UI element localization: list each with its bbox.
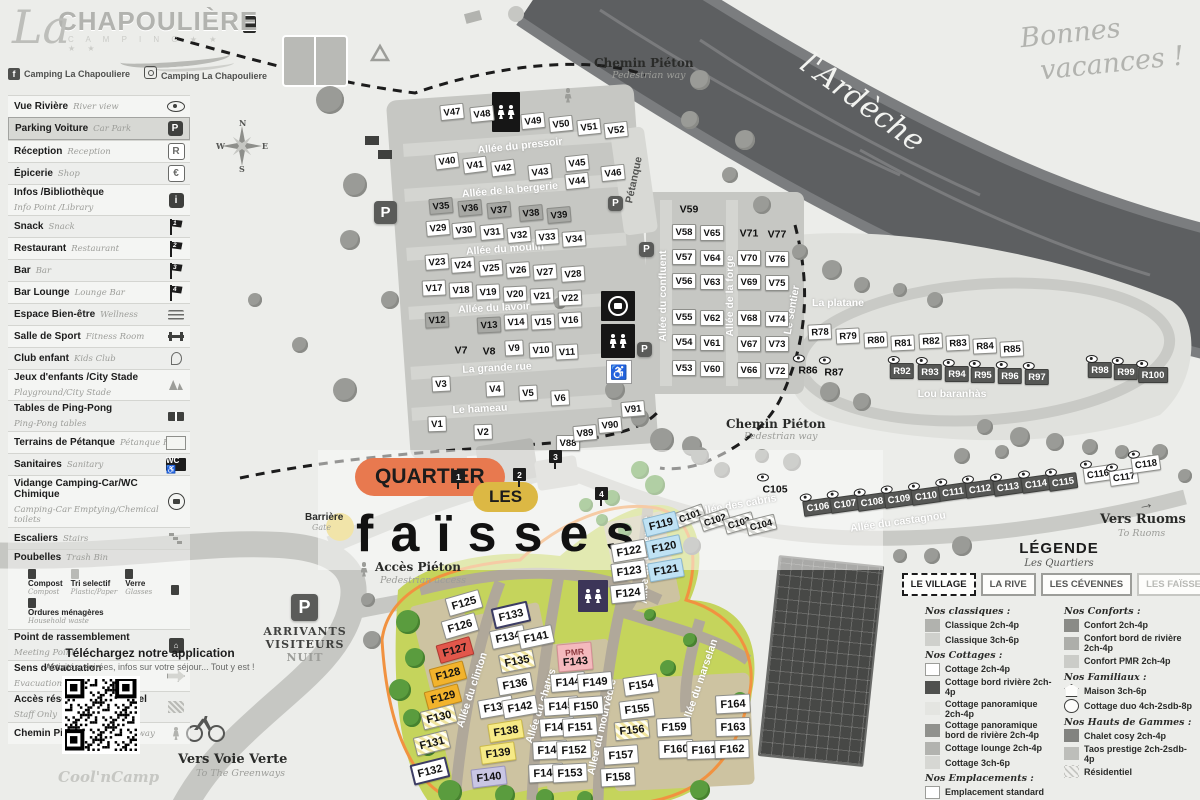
acces-pieton-fr: Accès Piéton	[375, 560, 461, 574]
pitch-F143: PMRF143	[556, 642, 593, 673]
tree-icon	[381, 291, 399, 309]
flag3-icon: 3	[166, 263, 186, 279]
pitch-V10: V10	[529, 341, 554, 358]
pitch-F151: F151	[562, 716, 598, 737]
tree-icon	[363, 631, 381, 649]
legend-item: Cottage bord rivière 2ch-4p	[925, 677, 1054, 697]
pitch-V24: V24	[451, 256, 476, 274]
parking-icon: P	[374, 201, 397, 224]
legend-swatch-icon	[1064, 684, 1079, 697]
legend-item: Cottage duo 4ch-2sdb-8p	[1064, 699, 1193, 713]
pitch-V41: V41	[462, 156, 488, 175]
tree-icon	[340, 230, 360, 250]
trash-icon	[166, 582, 186, 598]
pitch-V6: V6	[550, 390, 569, 407]
pitch-V74: V74	[765, 311, 789, 327]
tree-icon	[292, 337, 308, 353]
wc-icon	[492, 92, 520, 132]
legend-swatch-icon	[1064, 655, 1079, 668]
pitch-F156: F156	[614, 719, 651, 742]
facility-name-fr: Restaurant	[14, 243, 66, 254]
pitch-V20: V20	[503, 285, 528, 302]
pitch-R96: R96	[998, 368, 1022, 384]
pitch-V28: V28	[561, 265, 586, 283]
acces-pieton-en: Pedestrian access	[380, 575, 466, 586]
app-promo: Téléchargez notre application Activités,…	[0, 646, 300, 672]
pitch-V58: V58	[672, 224, 696, 240]
wc-icon-faisses	[578, 580, 608, 612]
sidebar-item-reception: RéceptionReceptionR	[8, 140, 190, 162]
legend-swatch-icon	[925, 724, 940, 737]
facility-name-fr: Snack	[14, 221, 43, 232]
sidebar-item-wellness: Espace Bien-êtreWellness	[8, 303, 190, 325]
pitch-V26: V26	[506, 261, 531, 279]
pitch-R84: R84	[972, 337, 997, 354]
wellness-icon	[166, 307, 186, 323]
facility-name-fr: Poubelles	[14, 552, 61, 563]
facility-name-fr: Réception	[14, 146, 62, 157]
facility-flag-4: 4	[595, 487, 608, 500]
pitch-V33: V33	[535, 228, 560, 246]
tree-icon	[495, 785, 515, 800]
pitch-V47: V47	[439, 103, 464, 121]
legend-section-title: Nos Conforts :	[1064, 606, 1193, 617]
pitch-V53: V53	[672, 360, 696, 376]
quarter-chip-les-cévennes[interactable]: LES CÉVENNES	[1041, 573, 1132, 596]
pitch-F159: F159	[656, 717, 692, 738]
sidebar-item-sanitary: SanitairesSanitaryWC♿	[8, 453, 190, 475]
river-view-eye-icon	[943, 359, 955, 367]
playground-icon	[166, 377, 186, 393]
facility-name-fr: Club enfant	[14, 353, 69, 364]
legend-item: Emplacement standard	[925, 786, 1054, 799]
pitch-V40: V40	[434, 152, 460, 171]
pitch-V76: V76	[765, 251, 789, 267]
tree-icon	[977, 419, 993, 435]
pitch-V62: V62	[700, 310, 724, 326]
river-view-eye-icon	[989, 473, 1002, 483]
tree-icon	[853, 393, 871, 411]
legend-swatch-icon	[925, 619, 940, 632]
legend-item: Confort PMR 2ch-4p	[1064, 655, 1193, 668]
pitch-V11: V11	[555, 343, 579, 360]
facility-name-en: Playground/City Stade	[14, 388, 111, 398]
legend-item: Taos prestige 2ch-2sdb-4p	[1064, 744, 1193, 764]
pitch-V29: V29	[425, 219, 450, 237]
facility-name-en: Stairs	[63, 534, 88, 544]
social-links: fCamping La Chapouliere Camping La Chapo…	[8, 66, 267, 81]
pitch-V5: V5	[518, 385, 537, 402]
greenway-label-en: To The Greenways	[196, 768, 285, 779]
pitch-R83: R83	[945, 334, 970, 351]
facility-name-en: Lounge Bar	[75, 288, 125, 298]
pedestrian-icon	[166, 726, 186, 742]
facility-name-fr: Infos /Bibliothèque	[14, 187, 104, 198]
facility-name-en: Camping-Car Emptying/Chemical toilets	[14, 505, 186, 525]
pitch-V25: V25	[479, 259, 504, 277]
river-view-eye-icon	[916, 357, 928, 365]
sidebar-item-playground: Jeux d'enfants /City StadePlayground/Cit…	[8, 369, 190, 400]
river-view-eye-icon	[1044, 468, 1057, 478]
tree-icon	[995, 445, 1009, 459]
sidebar-item-info: Infos /BibliothèqueInfo Point /Libraryi	[8, 184, 190, 215]
tree-icon	[361, 593, 375, 607]
pitch-V37: V37	[486, 201, 511, 219]
pitch-V46: V46	[600, 164, 625, 182]
instagram-link: Camping La Chapouliere	[144, 66, 267, 81]
facility-name-en: Wellness	[100, 310, 138, 320]
pitch-V30: V30	[451, 221, 476, 239]
legend-item: Cottage lounge 2ch-4p	[925, 742, 1054, 755]
pitch-V38: V38	[518, 204, 543, 222]
facility-name-fr: Espace Bien-être	[14, 309, 95, 320]
app-promo-title: Téléchargez notre application	[0, 646, 300, 660]
river-view-eye-icon	[1105, 463, 1118, 473]
legend-swatch-icon	[925, 663, 940, 676]
sidebar-item-flag3: BarBar3	[8, 259, 190, 281]
tree-icon	[333, 378, 357, 402]
bicycle-icon	[186, 716, 226, 742]
quarter-chip-le-village[interactable]: LE VILLAGE	[902, 573, 976, 596]
pitch-R79: R79	[835, 327, 860, 344]
legend-section-title: Nos Familiaux :	[1064, 672, 1193, 683]
facebook-icon: f	[8, 68, 20, 80]
pitch-V59: V59	[677, 202, 701, 217]
facility-name-en: Snack	[48, 222, 74, 232]
legend-section-title: Nos Emplacements :	[925, 773, 1054, 784]
facility-name-en: Car Park	[93, 124, 131, 134]
river-view-eye-icon	[935, 478, 948, 488]
legend-swatch-icon	[925, 742, 940, 755]
legend: LÉGENDE Les Quartiers LE VILLAGELA RIVEL…	[925, 540, 1193, 800]
tree-icon	[735, 130, 755, 150]
sidebar-item-parking: Parking VoitureCar ParkP	[8, 117, 190, 140]
legend-item: Cottage 2ch-4p	[925, 663, 1054, 676]
pitch-V55: V55	[672, 309, 696, 325]
sidebar-item-vidange: Vidange Camping-Car/WC ChimiqueCamping-C…	[8, 475, 190, 527]
tree-icon	[644, 609, 656, 621]
facility-flag-2: 2	[513, 468, 526, 481]
pitch-V56: V56	[672, 273, 696, 289]
pitch-V35: V35	[428, 197, 453, 215]
tree-icon	[405, 648, 425, 668]
banner-faisses: faïsses	[356, 504, 651, 564]
tree-icon	[438, 780, 462, 800]
legend-item: Confort bord de rivière 2ch-4p	[1064, 633, 1193, 653]
facility-name-fr: Terrains de Pétanque	[14, 437, 115, 448]
quarter-chip-la-rive[interactable]: LA RIVE	[981, 573, 1036, 596]
pitch-V21: V21	[530, 287, 555, 304]
legend-item: Chalet cosy 2ch-4p	[1064, 729, 1193, 742]
facility-name-fr: Bar	[14, 265, 31, 276]
tree-icon	[792, 244, 808, 260]
pitch-V7: V7	[452, 343, 470, 358]
instagram-icon	[144, 66, 157, 79]
pitch-V8: V8	[480, 344, 498, 359]
kids-icon	[166, 351, 186, 367]
tree-icon	[820, 382, 840, 402]
pitch-V18: V18	[449, 281, 474, 298]
facility-name-fr: Bar Lounge	[14, 287, 70, 298]
pitch-V42: V42	[490, 159, 516, 178]
street-label: Lou baranhàs	[918, 388, 987, 400]
river-view-eye-icon	[799, 493, 812, 503]
legend-item: Maison 3ch-6p	[1064, 684, 1193, 697]
pitch-R92: R92	[890, 363, 914, 379]
facility-name-fr: Sanitaires	[14, 459, 62, 470]
pitch-F162: F162	[714, 739, 750, 759]
compass-rose: N E S W	[218, 122, 266, 170]
pitch-V39: V39	[546, 206, 571, 224]
tree-icon	[683, 633, 697, 647]
tree-icon	[753, 196, 771, 214]
sidebar-item-stairs: EscaliersStairs	[8, 527, 190, 549]
river-view-eye-icon	[1086, 355, 1098, 363]
pitch-V17: V17	[422, 279, 447, 296]
tree-icon	[690, 780, 710, 800]
river-view-eye-icon	[1112, 357, 1124, 365]
barriere-label: Barrière	[305, 512, 343, 523]
sidebar-item-fitness: Salle de SportFitness Room	[8, 325, 190, 347]
pitch-R100: R100	[1138, 367, 1168, 383]
river-view-eye-icon	[961, 475, 974, 485]
pitch-R94: R94	[945, 366, 969, 382]
pitch-R85: R85	[999, 340, 1024, 357]
tree-icon	[927, 292, 943, 308]
shop-icon: €	[166, 166, 186, 182]
sidebar-item-trash: PoubellesTrash BinCompostCompostTri sele…	[8, 549, 190, 629]
pitch-V36: V36	[457, 199, 482, 217]
pitch-V31: V31	[479, 223, 504, 241]
chemin-pieton-right-en: Pedestrian way	[744, 431, 818, 442]
app-promo-subtitle: Activités, soirées, infos sur votre séjo…	[0, 662, 300, 672]
pitch-F150: F150	[568, 695, 604, 716]
river-view-eye-icon	[757, 474, 769, 482]
barriere-label-en: Gate	[312, 523, 331, 532]
river-view-eye-icon	[826, 490, 839, 500]
tree-icon	[893, 549, 907, 563]
legend-swatch-icon	[1064, 729, 1079, 742]
pitch-R82: R82	[918, 332, 943, 349]
pitch-V19: V19	[476, 283, 501, 300]
facility-name-en: Ping-Pong tables	[14, 419, 86, 429]
pitch-V72: V72	[765, 363, 789, 379]
pitch-V61: V61	[700, 335, 724, 351]
pitch-V89: V89	[572, 424, 597, 442]
pitch-F163: F163	[715, 717, 751, 737]
pitch-V70: V70	[737, 250, 761, 266]
pitch-R99: R99	[1114, 364, 1138, 380]
accessible-icon: ♿	[606, 360, 632, 384]
logo: La CHAPOULIÈRE C A M P I N G ★ ★ ★ ★	[10, 6, 240, 53]
pitch-R93: R93	[918, 364, 942, 380]
legend-subtitle: Les Quartiers	[925, 558, 1193, 569]
sidebar-item-petanque: Terrains de PétanquePétanque Field	[8, 431, 190, 453]
pitch-V1: V1	[427, 416, 446, 433]
pitch-R78: R78	[807, 323, 832, 340]
trash-subtypes: CompostCompostTri selectifPlastic/PaperV…	[14, 568, 186, 627]
river-view-eye-icon	[1017, 470, 1030, 480]
parking-icon: P	[637, 342, 652, 357]
pitch-V71: V71	[737, 226, 761, 241]
pitch-C105: C105	[760, 482, 790, 497]
facility-name-en: Sanitary	[67, 460, 103, 470]
legend-swatch-icon	[1064, 637, 1079, 650]
pitch-V64: V64	[700, 250, 724, 266]
pitch-F158: F158	[600, 767, 636, 788]
reception-icon: R	[166, 144, 186, 160]
facility-name-fr: Parking Voiture	[15, 123, 88, 134]
facility-name-en: Info Point /Library	[14, 203, 93, 213]
legend-item: Classique 3ch-6p	[925, 633, 1054, 646]
river-view-eye-icon	[907, 482, 920, 492]
river-view-eye-icon	[819, 357, 831, 365]
trash-subtype: Tri selectifPlastic/Paper	[71, 569, 118, 596]
river-view-eye-icon	[793, 355, 805, 363]
ruoms-arrow-icon: →	[1136, 495, 1155, 516]
facility-name-fr: Point de rassemblement	[14, 632, 130, 643]
pitch-F164: F164	[715, 694, 751, 715]
facility-name-en: River view	[73, 102, 119, 112]
staff-icon	[166, 699, 186, 715]
quarter-selector: LE VILLAGELA RIVELES CÉVENNESLES FAÏSSES	[925, 573, 1193, 596]
tree-icon	[403, 709, 421, 727]
pitch-V63: V63	[700, 274, 724, 290]
legend-item: Cottage panoramique bord de rivière 2ch-…	[925, 720, 1054, 740]
legend-swatch-icon	[925, 756, 940, 769]
pitch-V49: V49	[520, 112, 545, 130]
pitch-V14: V14	[504, 313, 529, 330]
legend-item: Confort 2ch-4p	[1064, 619, 1193, 632]
pitch-R87: R87	[822, 365, 846, 380]
tree-icon	[1082, 439, 1098, 455]
facility-name-fr: Tables de Ping-Pong	[14, 403, 112, 414]
pitch-V15: V15	[531, 313, 556, 330]
pitch-V16: V16	[558, 311, 583, 328]
pitch-V27: V27	[533, 263, 558, 281]
pitch-V91: V91	[620, 400, 645, 418]
tree-icon	[343, 173, 367, 197]
facility-name-fr: Vidange Camping-Car/WC Chimique	[14, 478, 186, 500]
chemin-pieton-top-fr: Chemin Piéton	[594, 56, 694, 70]
legend-swatch-icon	[925, 681, 940, 694]
river-view-eye-icon	[996, 361, 1008, 369]
legend-swatch-icon	[1064, 699, 1079, 713]
camper-service-icon	[601, 291, 635, 321]
river-view-eye-icon	[888, 356, 900, 364]
parking-icon: P	[639, 242, 654, 257]
coolncamp-logo: Cool'nCamp	[58, 768, 148, 786]
river-view-eye-icon	[1023, 362, 1035, 370]
facility-name-en: Shop	[58, 169, 80, 179]
pitch-V4: V4	[485, 381, 504, 398]
river-view-eye-icon	[880, 485, 893, 495]
pitch-V57: V57	[672, 249, 696, 265]
qr-code	[62, 676, 140, 754]
legend-swatch-icon	[1064, 747, 1079, 760]
tree-icon	[1046, 433, 1064, 451]
facility-flag-1: 1	[452, 470, 465, 483]
trash-subtype: VerreGlasses	[125, 569, 152, 596]
facility-name-en: Kids Club	[74, 354, 116, 364]
pitch-V50: V50	[548, 115, 573, 133]
flag4-icon: 4	[166, 285, 186, 301]
pitch-V9: V9	[504, 340, 523, 357]
sidebar-item-shop: ÉpicerieShop€	[8, 162, 190, 184]
stairs-icon	[166, 531, 186, 547]
tree-icon	[650, 428, 674, 452]
quarter-chip-les-faïsses[interactable]: LES FAÏSSES	[1137, 573, 1200, 596]
pedestrian-icon	[564, 88, 572, 103]
pitch-V2: V2	[473, 424, 492, 441]
pitch-V43: V43	[527, 163, 552, 181]
pitch-V66: V66	[737, 362, 761, 378]
pitch-F153: F153	[552, 763, 588, 784]
river-view-eye-icon	[1136, 360, 1148, 368]
sidebar-item-flag1: SnackSnack1	[8, 215, 190, 237]
legend-swatch-icon	[925, 633, 940, 646]
tree-icon	[893, 283, 907, 297]
facility-name-en: Staff Only	[14, 710, 57, 720]
pitch-F157: F157	[603, 744, 639, 765]
tree-icon	[577, 791, 593, 800]
pitch-F124: F124	[610, 582, 647, 605]
trash-subtype: Ordures ménagèresHousehold waste	[28, 598, 104, 625]
facility-name-fr: Épicerie	[14, 168, 53, 179]
pitch-V13: V13	[477, 316, 502, 333]
logo-script: La	[12, 0, 70, 54]
trash-subtype: CompostCompost	[28, 569, 63, 596]
river-view-eye-icon	[1079, 460, 1092, 470]
tree-icon	[396, 610, 420, 634]
sidebar-item-kids: Club enfantKids Club	[8, 347, 190, 369]
tree-icon	[681, 111, 699, 129]
sanitary-icon: WC♿	[166, 457, 186, 473]
sidebar-item-flag4: Bar LoungeLounge Bar4	[8, 281, 190, 303]
pitch-V65: V65	[700, 225, 724, 241]
tree-icon	[722, 167, 738, 183]
pitch-R86: R86	[796, 363, 820, 378]
legend-section-title: Nos classiques :	[925, 606, 1054, 617]
tree-icon	[1010, 427, 1030, 447]
pitch-V75: V75	[765, 275, 789, 291]
pitch-V77: V77	[765, 227, 789, 242]
pitch-V23: V23	[425, 253, 450, 271]
pitch-F149: F149	[577, 671, 614, 693]
sidebar-item-flag2: RestaurantRestaurant2	[8, 237, 190, 259]
legend-swatch-icon	[925, 702, 940, 715]
pitch-V52: V52	[603, 121, 628, 139]
chemin-pieton-right-fr: Chemin Piéton	[726, 417, 826, 431]
tree-icon	[660, 660, 676, 676]
info-icon: i	[166, 192, 186, 208]
parking-icon: P	[608, 196, 623, 211]
pitch-R95: R95	[971, 367, 995, 383]
tree-icon	[954, 448, 970, 464]
legend-swatch-icon	[1064, 765, 1079, 778]
facility-name-en: Reception	[67, 147, 110, 157]
pitch-F152: F152	[556, 740, 592, 761]
sidebar-item-eye: Vue RivièreRiver view	[8, 95, 190, 117]
pitch-V48: V48	[469, 105, 494, 123]
pitch-V60: V60	[700, 361, 724, 377]
pitch-V90: V90	[597, 416, 622, 434]
legend-item: Résidentiel	[1064, 765, 1193, 778]
pingpong-icon	[166, 408, 186, 424]
tree-icon	[389, 679, 411, 701]
pitch-R80: R80	[863, 331, 888, 348]
pitch-V51: V51	[576, 118, 601, 136]
